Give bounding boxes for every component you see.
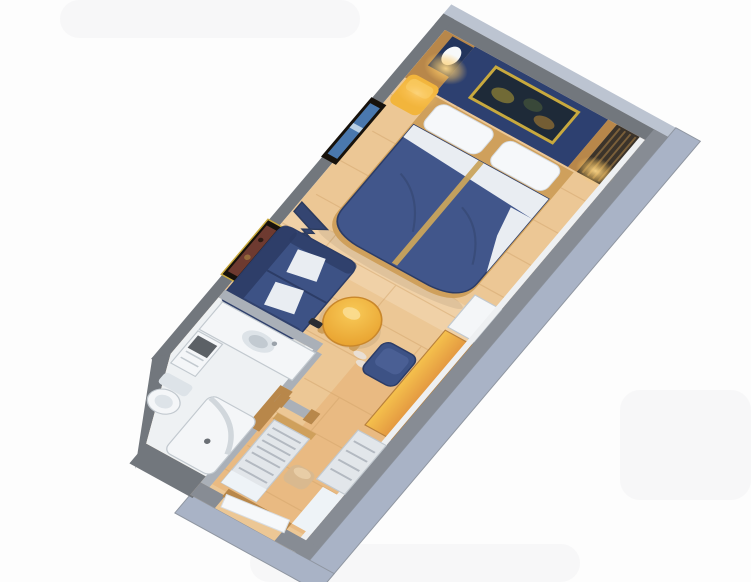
floorplan-render [0,0,751,582]
page-background [0,0,751,582]
